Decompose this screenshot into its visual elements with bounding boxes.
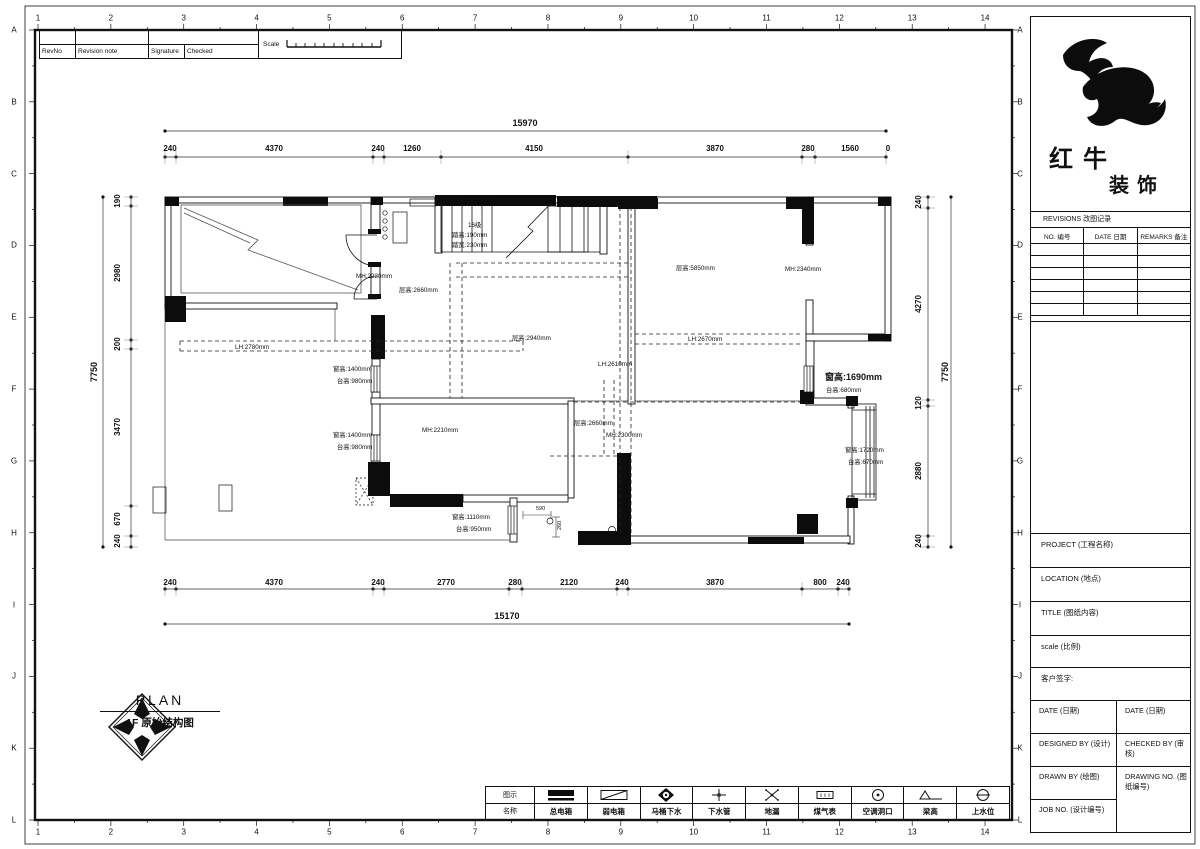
revisions-empty-cell: [1084, 292, 1137, 303]
dashed-beams: [180, 207, 806, 536]
annotation-text: 台高:980mm: [337, 442, 372, 451]
svg-text:3870: 3870: [706, 578, 724, 587]
revisions-empty-cell: [1138, 268, 1190, 279]
annotation-text: 窗高:1720mm: [845, 445, 884, 454]
svg-text:3870: 3870: [706, 144, 724, 153]
grid-letter-right: A: [1017, 26, 1022, 35]
legend-item: 弱电箱: [588, 787, 641, 819]
revisions-empty-row: [1031, 244, 1190, 256]
svg-text:280: 280: [508, 578, 522, 587]
revisions-empty-cell: [1138, 280, 1190, 291]
svg-text:200: 200: [113, 337, 122, 351]
svg-text:3470: 3470: [113, 418, 122, 436]
svg-text:C: C: [138, 740, 146, 752]
annotation-text: 层高:2660mm: [574, 418, 613, 427]
field-drawing-no: DRAWING NO. (图纸编号): [1117, 767, 1190, 832]
grid-number-bottom: 5: [327, 828, 331, 837]
grid-letter-left: D: [11, 241, 17, 250]
svg-text:7750: 7750: [89, 362, 99, 382]
svg-text:240: 240: [914, 195, 923, 209]
plan-caption: PLAN 1F 原始结构图: [100, 690, 220, 730]
svg-text:670: 670: [113, 512, 122, 526]
revisions-empty-row: [1031, 280, 1190, 292]
annotation-text: 260: [557, 521, 563, 530]
annotation-text: MH:2340mm: [785, 266, 821, 273]
revisions-empty-cell: [1084, 304, 1137, 315]
drawing-sheet: 1597015170775077502404370240126041503870…: [0, 0, 1200, 849]
revisions-empty-cell: [1084, 256, 1137, 267]
grid-number-top: 6: [400, 14, 404, 23]
grid-letter-left: L: [12, 816, 16, 825]
weak-electric-box-icon: [588, 787, 640, 804]
toilet-drain-icon: [641, 787, 693, 804]
revisions-title: REVISIONS 改图记录: [1031, 211, 1190, 228]
annotation-text: 台高:680mm: [826, 385, 861, 394]
grid-number-bottom: 3: [181, 828, 185, 837]
grid-number-bottom: 1: [36, 828, 40, 837]
grid-letter-left: B: [11, 97, 16, 106]
plan-subtitle: 1F 原始结构图: [100, 711, 220, 730]
field-date-right: DATE (日期): [1117, 701, 1190, 734]
annotation-text: 窗高:1690mm: [825, 371, 882, 382]
brand-name: 红牛: [1049, 139, 1117, 174]
revisions-empty-cell: [1138, 292, 1190, 303]
title-block: 红牛 装饰 REVISIONS 改图记录 NO. 编号DATE 日期REMARK…: [1030, 16, 1191, 833]
revisions-empty-cell: [1084, 280, 1137, 291]
window-bottom-center: [508, 506, 517, 534]
revisions-empty-cell: [1138, 304, 1190, 315]
field-drawn-by: DRAWN BY (绘图): [1031, 767, 1117, 800]
svg-text:15170: 15170: [494, 611, 519, 621]
grid-letter-right: D: [1017, 241, 1023, 250]
legend-header-symbol: 图示: [486, 787, 534, 804]
annotation-text: LH:2670mm: [688, 336, 722, 343]
legend-item-name: 弱电箱: [588, 804, 640, 820]
scale-bar: [285, 38, 385, 50]
field-project: PROJECT (工程名称): [1031, 534, 1190, 568]
bull-logo-icon: [1049, 31, 1169, 136]
legend-item-name: 空调洞口: [852, 804, 904, 820]
annotation-text: 层高:5850mm: [676, 263, 715, 272]
revisions-empty-cell: [1084, 268, 1137, 279]
revisions-empty-cell: [1084, 244, 1137, 255]
field-client-signature: 客户签字:: [1031, 668, 1190, 701]
detail-dims: [523, 511, 560, 537]
revisions-empty-cell: [1031, 280, 1084, 291]
legend-item-name: 总电箱: [535, 804, 587, 820]
grid-number-bottom: 13: [908, 828, 917, 837]
legend-item-name: 马桶下水: [641, 804, 693, 820]
rev-strip-header: Revision note: [76, 45, 149, 59]
symbol-legend: 图示 名称 总电箱弱电箱马桶下水下水管地漏煤气表空调洞口梁高上水位: [485, 786, 1010, 820]
field-designed-by: DESIGNED BY (设计): [1031, 734, 1117, 767]
grid-number-bottom: 9: [619, 828, 623, 837]
legend-item: 地漏: [746, 787, 799, 819]
svg-text:280: 280: [801, 144, 815, 153]
grid-number-top: 12: [835, 14, 844, 23]
main-electric-box-icon: [535, 787, 587, 804]
revisions-col-header: NO. 编号: [1031, 228, 1084, 243]
water-supply-icon: [957, 787, 1009, 804]
revisions-empty-cell: [1138, 256, 1190, 267]
grid-number-top: 2: [109, 14, 113, 23]
revisions-empty-cell: [1031, 304, 1084, 315]
revisions-empty-row: [1031, 304, 1190, 316]
grid-number-top: 11: [762, 14, 770, 23]
drain-pipe-icon: [693, 787, 745, 804]
walls: [165, 197, 891, 544]
revisions-empty-cell: [1031, 292, 1084, 303]
grid-number-top: 9: [619, 14, 623, 23]
svg-text:240: 240: [113, 534, 122, 548]
svg-text:15970: 15970: [512, 118, 537, 128]
annotation-text: LH:2780mm: [235, 344, 269, 351]
svg-text:2120: 2120: [560, 578, 578, 587]
wall-fills: [165, 195, 891, 545]
ac-opening-icon: [852, 787, 904, 804]
legend-item: 马桶下水: [641, 787, 694, 819]
annotation-text: 窗高:1110mm: [452, 512, 490, 521]
grid-number-top: 5: [327, 14, 331, 23]
svg-text:2770: 2770: [437, 578, 455, 587]
grid-letter-right: K: [1017, 744, 1022, 753]
svg-text:1560: 1560: [841, 144, 859, 153]
annotation-text: 窗高:1400mm: [333, 430, 372, 439]
legend-item: 煤气表: [799, 787, 852, 819]
rev-strip-header: Signature: [149, 45, 185, 59]
svg-text:240: 240: [163, 144, 177, 153]
svg-text:240: 240: [836, 578, 850, 587]
grid-number-bottom: 4: [254, 828, 258, 837]
grid-letter-left: J: [12, 672, 16, 681]
field-date-left: DATE (日期): [1031, 701, 1117, 734]
legend-item: 总电箱: [535, 787, 588, 819]
grid-letter-right: C: [1017, 169, 1023, 178]
grid-number-bottom: 14: [981, 828, 990, 837]
annotation-text: 16级: [468, 220, 482, 229]
grid-letter-left: H: [11, 528, 17, 537]
revisions-empty-cell: [1031, 244, 1084, 255]
grid-letter-right: F: [1018, 385, 1023, 394]
grid-number-bottom: 11: [762, 828, 770, 837]
field-checked-by: CHECKED BY (审核): [1117, 734, 1190, 767]
grid-letter-left: K: [11, 744, 16, 753]
svg-text:0: 0: [886, 144, 891, 153]
legend-item-name: 煤气表: [799, 804, 851, 820]
revisions-empty-cell: [1031, 268, 1084, 279]
legend-item: 空调洞口: [852, 787, 905, 819]
svg-text:4270: 4270: [914, 295, 923, 313]
grid-number-bottom: 12: [835, 828, 844, 837]
grid-number-top: 3: [181, 14, 185, 23]
grid-number-top: 10: [689, 14, 698, 23]
grid-number-top: 8: [546, 14, 550, 23]
legend-item: 梁高: [904, 787, 957, 819]
annotation-text: 踏宽:230mm: [452, 240, 487, 249]
grid-number-bottom: 6: [400, 828, 404, 837]
revisions-empty-cell: [1031, 256, 1084, 267]
revisions-empty-row: [1031, 292, 1190, 304]
annotation-text: 590: [536, 506, 545, 512]
field-scale: scale (比例): [1031, 636, 1190, 668]
svg-text:240: 240: [615, 578, 629, 587]
svg-text:4370: 4370: [265, 578, 283, 587]
rev-strip-header: RevNo: [40, 45, 76, 59]
grid-letter-right: B: [1017, 97, 1022, 106]
revisions-empty-row: [1031, 268, 1190, 280]
grid-letter-right: I: [1019, 600, 1021, 609]
revision-strip: RevNoRevision noteSignatureChecked Scale: [39, 29, 402, 59]
window-right: [804, 366, 813, 392]
rev-strip-header: Checked: [185, 45, 258, 59]
scale-label: Scale: [263, 41, 279, 48]
plan-title: PLAN: [100, 692, 220, 708]
grid-letter-left: E: [11, 313, 16, 322]
legend-item-name: 下水管: [693, 804, 745, 820]
grid-letter-right: J: [1018, 672, 1022, 681]
annotation-text: MH:2300mm: [606, 432, 642, 439]
gas-meter-icon: [799, 787, 851, 804]
drawing-preview-box: [1031, 321, 1190, 534]
annotation-text: 踏高:190mm: [452, 230, 487, 239]
brand-name-2: 装饰: [1109, 169, 1165, 198]
grid-letter-left: I: [13, 600, 15, 609]
grid-number-bottom: 2: [109, 828, 113, 837]
annotation-text: LH:2610mm: [598, 361, 632, 368]
svg-text:4370: 4370: [265, 144, 283, 153]
floor-drain-icon: [746, 787, 798, 804]
svg-text:7750: 7750: [940, 362, 950, 382]
company-logo: 红牛 装饰: [1031, 17, 1190, 212]
grid-letter-right: H: [1017, 528, 1023, 537]
svg-text:2880: 2880: [914, 462, 923, 480]
window-left-1: [371, 366, 380, 392]
revisions-table: NO. 编号DATE 日期REMARKS 备注: [1031, 228, 1190, 316]
window-left-2: [371, 435, 380, 461]
legend-item: 下水管: [693, 787, 746, 819]
svg-text:190: 190: [113, 194, 122, 208]
svg-text:2980: 2980: [113, 264, 122, 282]
grid-number-top: 1: [36, 14, 40, 23]
svg-text:4150: 4150: [525, 144, 543, 153]
svg-text:1260: 1260: [403, 144, 421, 153]
revisions-header-row: NO. 编号DATE 日期REMARKS 备注: [1031, 228, 1190, 244]
windows: [371, 366, 813, 534]
grid-letter-left: A: [11, 26, 16, 35]
void-diagonals: [181, 205, 361, 293]
legend-item-name: 上水位: [957, 804, 1009, 820]
revisions-col-header: REMARKS 备注: [1138, 228, 1190, 243]
revisions-empty-row: [1031, 256, 1190, 268]
svg-text:800: 800: [813, 578, 827, 587]
annotation-text: MH:2210mm: [422, 427, 458, 434]
grid-number-top: 4: [254, 14, 258, 23]
svg-text:240: 240: [371, 144, 385, 153]
revisions-col-header: DATE 日期: [1084, 228, 1137, 243]
revisions-empty-cell: [1138, 244, 1190, 255]
grid-letter-right: G: [1017, 456, 1023, 465]
annotation-text: 台高:980mm: [337, 376, 372, 385]
field-location: LOCATION (地点): [1031, 568, 1190, 602]
grid-number-bottom: 7: [473, 828, 477, 837]
grid-letter-left: G: [11, 456, 17, 465]
grid-letter-left: C: [11, 169, 17, 178]
legend-item-name: 梁高: [904, 804, 956, 820]
field-title: TITLE (图纸内容): [1031, 602, 1190, 636]
annotation-text: MH:2230mm: [356, 273, 392, 280]
legend-item: 上水位: [957, 787, 1009, 819]
annotation-text: 层高:2940mm: [512, 333, 551, 342]
grid-letter-left: F: [12, 385, 17, 394]
annotation-text: 窗高:1400mm: [333, 364, 372, 373]
grid-number-top: 13: [908, 14, 917, 23]
grid-number-bottom: 8: [546, 828, 550, 837]
field-job-no: JOB NO. (设计编号): [1031, 800, 1117, 832]
svg-text:120: 120: [914, 396, 923, 410]
plan-annotations: 16级踏高:190mm踏宽:230mmMH:2230mm层高:2660mm层高:…: [235, 220, 884, 533]
annotation-text: 台高:950mm: [456, 524, 491, 533]
grid-number-bottom: 10: [689, 828, 698, 837]
grid-number-top: 7: [473, 14, 477, 23]
annotation-text: 台高:670mm: [848, 457, 883, 466]
svg-text:240: 240: [371, 578, 385, 587]
svg-text:240: 240: [914, 534, 923, 548]
grid-number-top: 14: [981, 14, 990, 23]
svg-text:240: 240: [163, 578, 177, 587]
grid-letter-right: L: [1018, 816, 1022, 825]
grid-letter-right: E: [1017, 313, 1022, 322]
legend-item-name: 地漏: [746, 804, 798, 820]
beam-height-icon: [904, 787, 956, 804]
legend-header-name: 名称: [486, 804, 534, 820]
annotation-text: 层高:2660mm: [399, 285, 438, 294]
dimension-labels: 1597015170775077502404370240126041503870…: [89, 118, 950, 621]
